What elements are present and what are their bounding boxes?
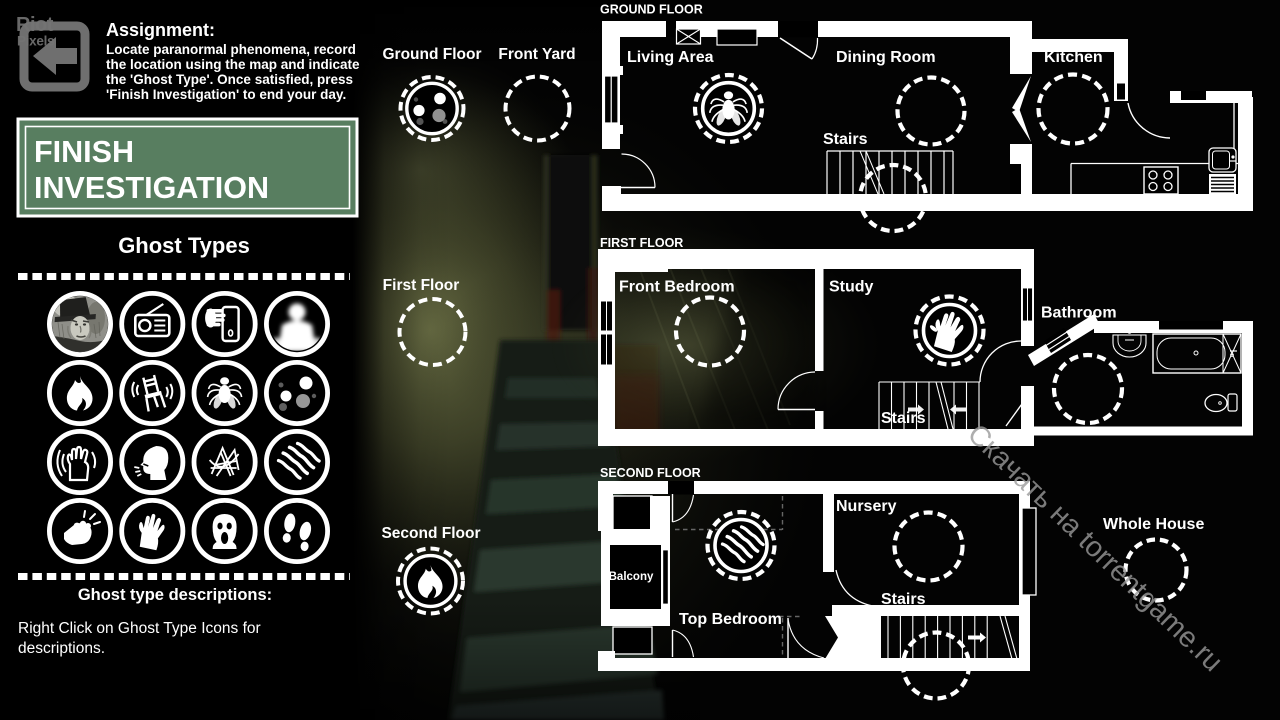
svg-text:Whole House: Whole House xyxy=(1103,516,1204,533)
svg-text:Stairs: Stairs xyxy=(881,410,926,427)
svg-text:Ghost Types: Ghost Types xyxy=(118,233,250,258)
svg-text:Assignment:: Assignment: xyxy=(106,20,215,40)
svg-text:Front Yard: Front Yard xyxy=(498,46,575,63)
svg-text:SECOND FLOOR: SECOND FLOOR xyxy=(600,466,701,480)
svg-text:Second Floor: Second Floor xyxy=(381,525,480,542)
svg-text:Front Bedroom: Front Bedroom xyxy=(619,279,735,296)
svg-text:Study: Study xyxy=(829,279,874,296)
svg-text:Living Area: Living Area xyxy=(627,49,714,66)
svg-text:FINISH: FINISH xyxy=(34,135,134,169)
svg-text:Bathroom: Bathroom xyxy=(1041,305,1117,322)
svg-text:Ground Floor: Ground Floor xyxy=(382,46,481,63)
svg-text:First Floor: First Floor xyxy=(383,277,460,294)
svg-text:Ghost type descriptions:: Ghost type descriptions: xyxy=(78,586,272,604)
svg-text:the 'Ghost Type'. Once satisfi: the 'Ghost Type'. Once satisfied, press xyxy=(106,72,353,87)
svg-text:Top Bedroom: Top Bedroom xyxy=(679,611,782,628)
svg-text:FIRST FLOOR: FIRST FLOOR xyxy=(600,236,683,250)
svg-text:Dining Room: Dining Room xyxy=(836,49,936,66)
svg-text:Stairs: Stairs xyxy=(823,131,868,148)
svg-text:the location using the map and: the location using the map and indicate xyxy=(106,57,360,72)
svg-text:INVESTIGATION: INVESTIGATION xyxy=(34,171,269,205)
svg-text:Kitchen: Kitchen xyxy=(1044,49,1103,66)
svg-text:descriptions.: descriptions. xyxy=(18,640,105,657)
svg-text:'Finish Investigation' to end: 'Finish Investigation' to end your day. xyxy=(106,87,346,102)
svg-text:Right Click on Ghost Type Icon: Right Click on Ghost Type Icons for xyxy=(18,620,261,637)
svg-text:Balcony: Balcony xyxy=(609,571,654,583)
svg-text:Nursery: Nursery xyxy=(836,498,897,515)
svg-text:GROUND FLOOR: GROUND FLOOR xyxy=(600,3,703,17)
svg-text:Stairs: Stairs xyxy=(881,591,926,608)
svg-text:Pixels: Pixels xyxy=(17,34,54,49)
svg-text:Locate paranormal phenomena, r: Locate paranormal phenomena, record xyxy=(106,42,356,57)
